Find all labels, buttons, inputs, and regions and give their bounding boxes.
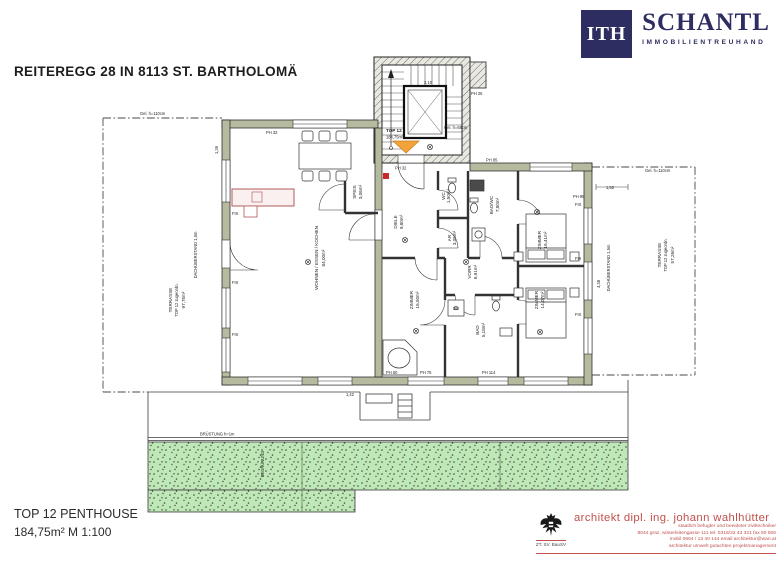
room-area-bad: 5,18m²: [481, 322, 486, 337]
room-area-badwc: 7,80m²: [495, 197, 500, 212]
architect-line1: staatlich befugter und beeideter zivilte…: [574, 524, 776, 531]
fix-label: FIX: [575, 312, 582, 317]
dim-1-50: 1,50: [606, 185, 615, 190]
architect-seal: ZT. SV. BauSV: [536, 512, 566, 550]
terrace-left-area: 97,75m²: [181, 291, 186, 308]
architect-stamp-text: ZT. SV. BauSV: [536, 540, 566, 547]
room-area-vorr: 6,91m²: [473, 264, 478, 279]
fix-label: FIX: [575, 202, 582, 207]
ph32-label: PH 32: [395, 166, 407, 171]
architect-text: architekt dipl. ing. johann wahlhütter s…: [574, 512, 776, 550]
dim-4-38: 4,38: [596, 279, 601, 288]
room-area-wohnen: 84,00m²: [321, 249, 326, 266]
fix-label: FIX: [232, 332, 239, 337]
shower-label: DU: [453, 306, 459, 311]
ph26-label: PH 26: [471, 91, 483, 96]
gel-mid-label: Gel. h=68cm: [444, 125, 468, 130]
room-label-zimmer2: ZIMMER: [534, 290, 539, 309]
room-area-speis: 3,06m²: [358, 184, 363, 199]
floor-plan-drawing: BRÜSTUNG h=1m BEGRÜNUNG TOP 12 184,75m² …: [0, 0, 784, 567]
terrace-left-sub: TOP 12 zugeordn.: [174, 283, 179, 316]
terrace-right-sub: TOP 12 zugeordn.: [663, 238, 668, 271]
room-area-diele: 9,80m²: [399, 214, 404, 229]
interior-doors: [319, 184, 542, 325]
fix-label: FIX: [232, 280, 239, 285]
dachueberstand-right: DACHÜBERSTAND 1,5m: [606, 244, 611, 291]
room-label-zimmer3: ZIMMER: [537, 230, 542, 249]
room-label-speis: SPEIS: [352, 185, 357, 199]
plan-sheet: REITEREGG 28 IN 8113 ST. BARTHOLOMÄ ITH …: [0, 0, 784, 567]
room-label-bad: BAD: [475, 325, 480, 335]
title-block: TOP 12 PENTHOUSE 184,75m² M 1:100: [14, 507, 138, 539]
begruenung-label: BEGRÜNUNG: [260, 451, 265, 478]
unit-label: TOP 12: [386, 128, 402, 133]
ph85-label: PH 85: [486, 158, 498, 163]
stairwell: [374, 57, 486, 189]
terrace-right-area: 57,26m²: [670, 246, 675, 263]
fix-label: FIX: [575, 256, 582, 261]
dim-1-42: 1,42: [346, 392, 355, 397]
dim-2-10: 2,10: [424, 80, 433, 85]
room-label-badwc: BAD/WC: [489, 195, 494, 214]
room-label-vorr: VORR: [467, 265, 472, 279]
gel-left-label: Gel. h=110cm: [140, 111, 166, 116]
dim-1-36: 1,36: [214, 145, 219, 154]
bruestung-label: BRÜSTUNG h=1m: [200, 432, 235, 437]
architect-name: architekt dipl. ing. johann wahlhütter: [574, 512, 776, 524]
room-area-ar: 3,05m²: [452, 230, 457, 245]
room-area-zimmer3: 16,41m²: [543, 231, 548, 248]
room-area-zimmer2: 14,07m²: [540, 291, 545, 308]
kitchen-counter: [232, 189, 294, 206]
architect-line4: architektur umwelt gutachten projektmana…: [574, 544, 776, 551]
ph114-label: PH 114: [482, 370, 496, 375]
room-label-wohnen: WOHNEN / ESSEN / KOCHEN: [314, 226, 319, 290]
room-label-diele: DIELE: [393, 215, 398, 228]
architect-block: ZT. SV. BauSV architekt dipl. ing. johan…: [536, 512, 776, 554]
room-area-zimmer1: 16,50m²: [415, 291, 420, 308]
room-label-zimmer1: ZIMMER: [409, 290, 414, 309]
distribution-box-icon: [383, 173, 389, 179]
unit-title: TOP 12 PENTHOUSE: [14, 507, 138, 521]
room-area-wc: 1,50m²: [446, 188, 451, 203]
ph32-label: PH 32: [266, 130, 278, 135]
dachueberstand-left: DACHÜBERSTAND 1,5m: [193, 231, 198, 278]
entrance-marker-icon: [393, 141, 419, 153]
fix-label: FIX: [232, 211, 239, 216]
green-roof-area: [148, 442, 628, 512]
ph98-label: PH 98: [573, 194, 585, 199]
terrace-right-name: TERRASSE: [657, 243, 662, 268]
gel-right-label: Gel. h=110cm: [645, 168, 671, 173]
architect-line3: mobil 0664 / 13 40 144 email architektur…: [574, 537, 776, 544]
unit-area: 184,75m²: [386, 135, 404, 140]
unit-details: 184,75m² M 1:100: [14, 525, 138, 539]
eagle-icon: [538, 512, 564, 538]
ph75-label: PH 75: [420, 370, 432, 375]
ph60-label: PH 60: [386, 370, 398, 375]
terrace-left-name: TERRASSE: [168, 288, 173, 313]
